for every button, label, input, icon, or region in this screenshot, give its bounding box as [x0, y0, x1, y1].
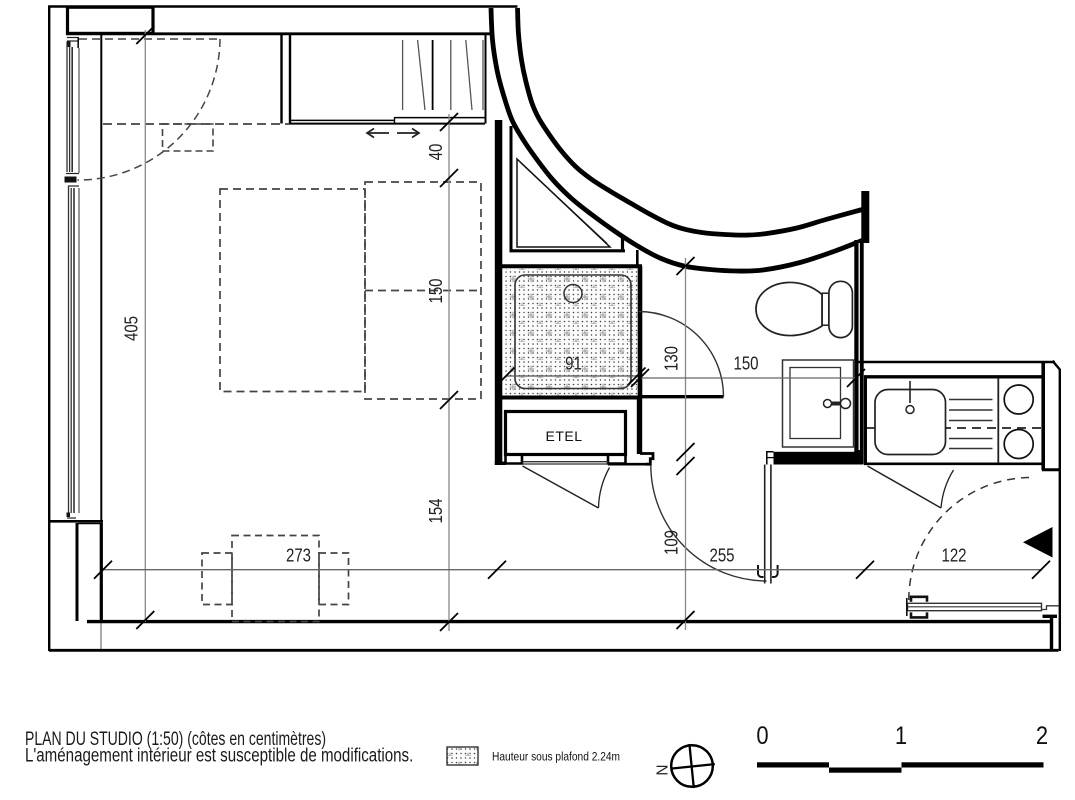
svg-text:ETEL: ETEL [545, 428, 582, 444]
svg-text:109: 109 [661, 530, 682, 555]
svg-text:0: 0 [756, 722, 768, 750]
svg-text:91: 91 [565, 353, 582, 374]
svg-text:273: 273 [286, 545, 311, 566]
svg-text:150: 150 [425, 278, 446, 303]
svg-text:L'aménagement intérieur est su: L'aménagement intérieur est susceptible … [25, 744, 413, 766]
svg-text:Hauteur sous plafond 2.24m: Hauteur sous plafond 2.24m [492, 751, 620, 764]
svg-text:150: 150 [733, 353, 758, 374]
svg-text:1: 1 [895, 722, 907, 750]
svg-text:130: 130 [661, 346, 682, 371]
svg-text:2: 2 [1036, 722, 1048, 750]
svg-text:N: N [653, 765, 670, 776]
svg-text:405: 405 [121, 316, 142, 341]
svg-text:154: 154 [425, 498, 446, 523]
svg-text:122: 122 [941, 545, 966, 566]
svg-text:255: 255 [709, 545, 734, 566]
svg-text:40: 40 [425, 144, 446, 161]
